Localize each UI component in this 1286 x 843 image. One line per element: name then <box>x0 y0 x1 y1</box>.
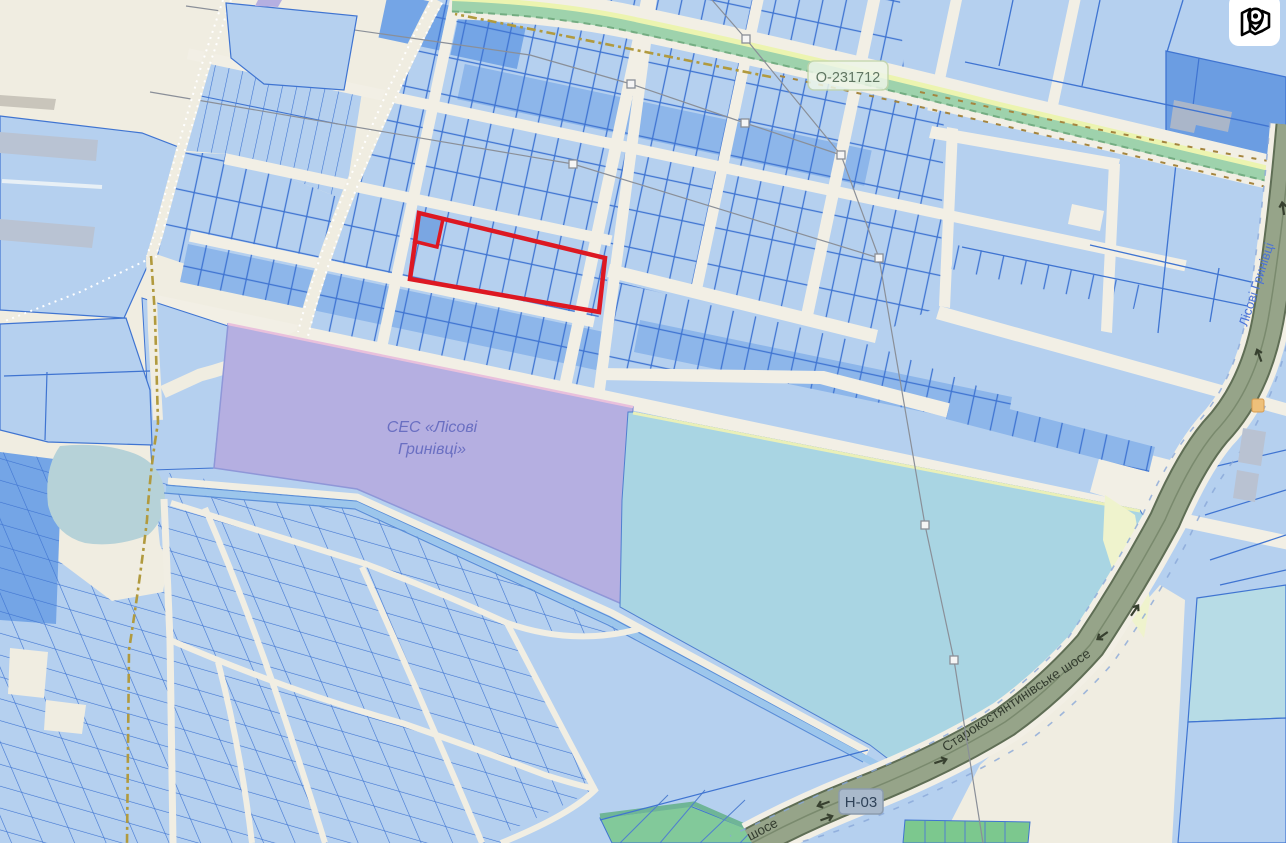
svg-text:Гринівці»: Гринівці» <box>398 441 466 458</box>
svg-text:О-231712: О-231712 <box>816 70 881 86</box>
svg-text:Н-03: Н-03 <box>845 794 878 811</box>
svg-text:СЕС «Лісові: СЕС «Лісові <box>387 419 478 436</box>
